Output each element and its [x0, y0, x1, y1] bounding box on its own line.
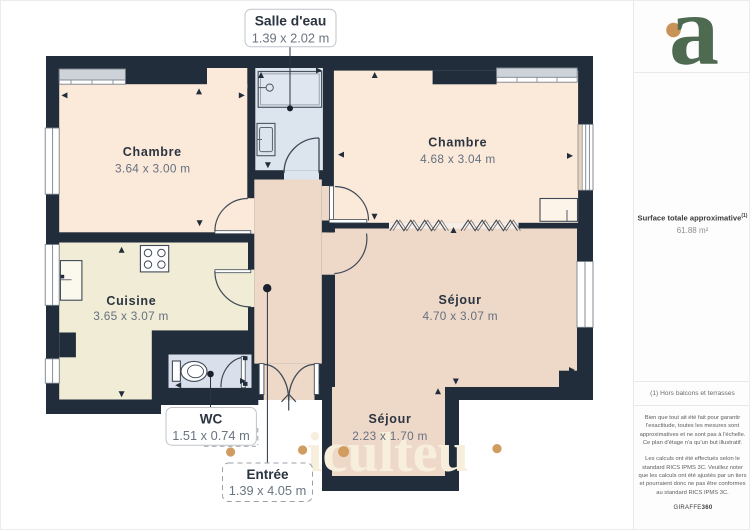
svg-text:3.64 x 3.00 m: 3.64 x 3.00 m	[115, 161, 190, 175]
svg-text:1.39 x 2.02 m: 1.39 x 2.02 m	[252, 31, 330, 46]
svg-text:3.65 x 3.07 m: 3.65 x 3.07 m	[93, 309, 168, 323]
svg-text:Chambre: Chambre	[428, 135, 487, 149]
svg-text:a: a	[669, 1, 719, 71]
svg-text:Séjour: Séjour	[368, 412, 411, 426]
svg-text:Cuisine: Cuisine	[106, 294, 156, 308]
svg-text:WC: WC	[200, 411, 223, 426]
svg-text:4.68 x 3.04 m: 4.68 x 3.04 m	[420, 152, 495, 166]
svg-text:Salle d'eau: Salle d'eau	[255, 14, 327, 29]
svg-text:2.23 x 1.70 m: 2.23 x 1.70 m	[352, 429, 427, 443]
svg-text:Chambre: Chambre	[123, 145, 182, 159]
svg-text:Entrée: Entrée	[246, 467, 289, 482]
svg-text:4.70 x 3.07 m: 4.70 x 3.07 m	[423, 309, 498, 323]
svg-text:1.51 x 0.74 m: 1.51 x 0.74 m	[172, 428, 250, 443]
svg-text:1.39 x 4.05 m: 1.39 x 4.05 m	[229, 483, 307, 498]
svg-text:Séjour: Séjour	[439, 293, 482, 307]
